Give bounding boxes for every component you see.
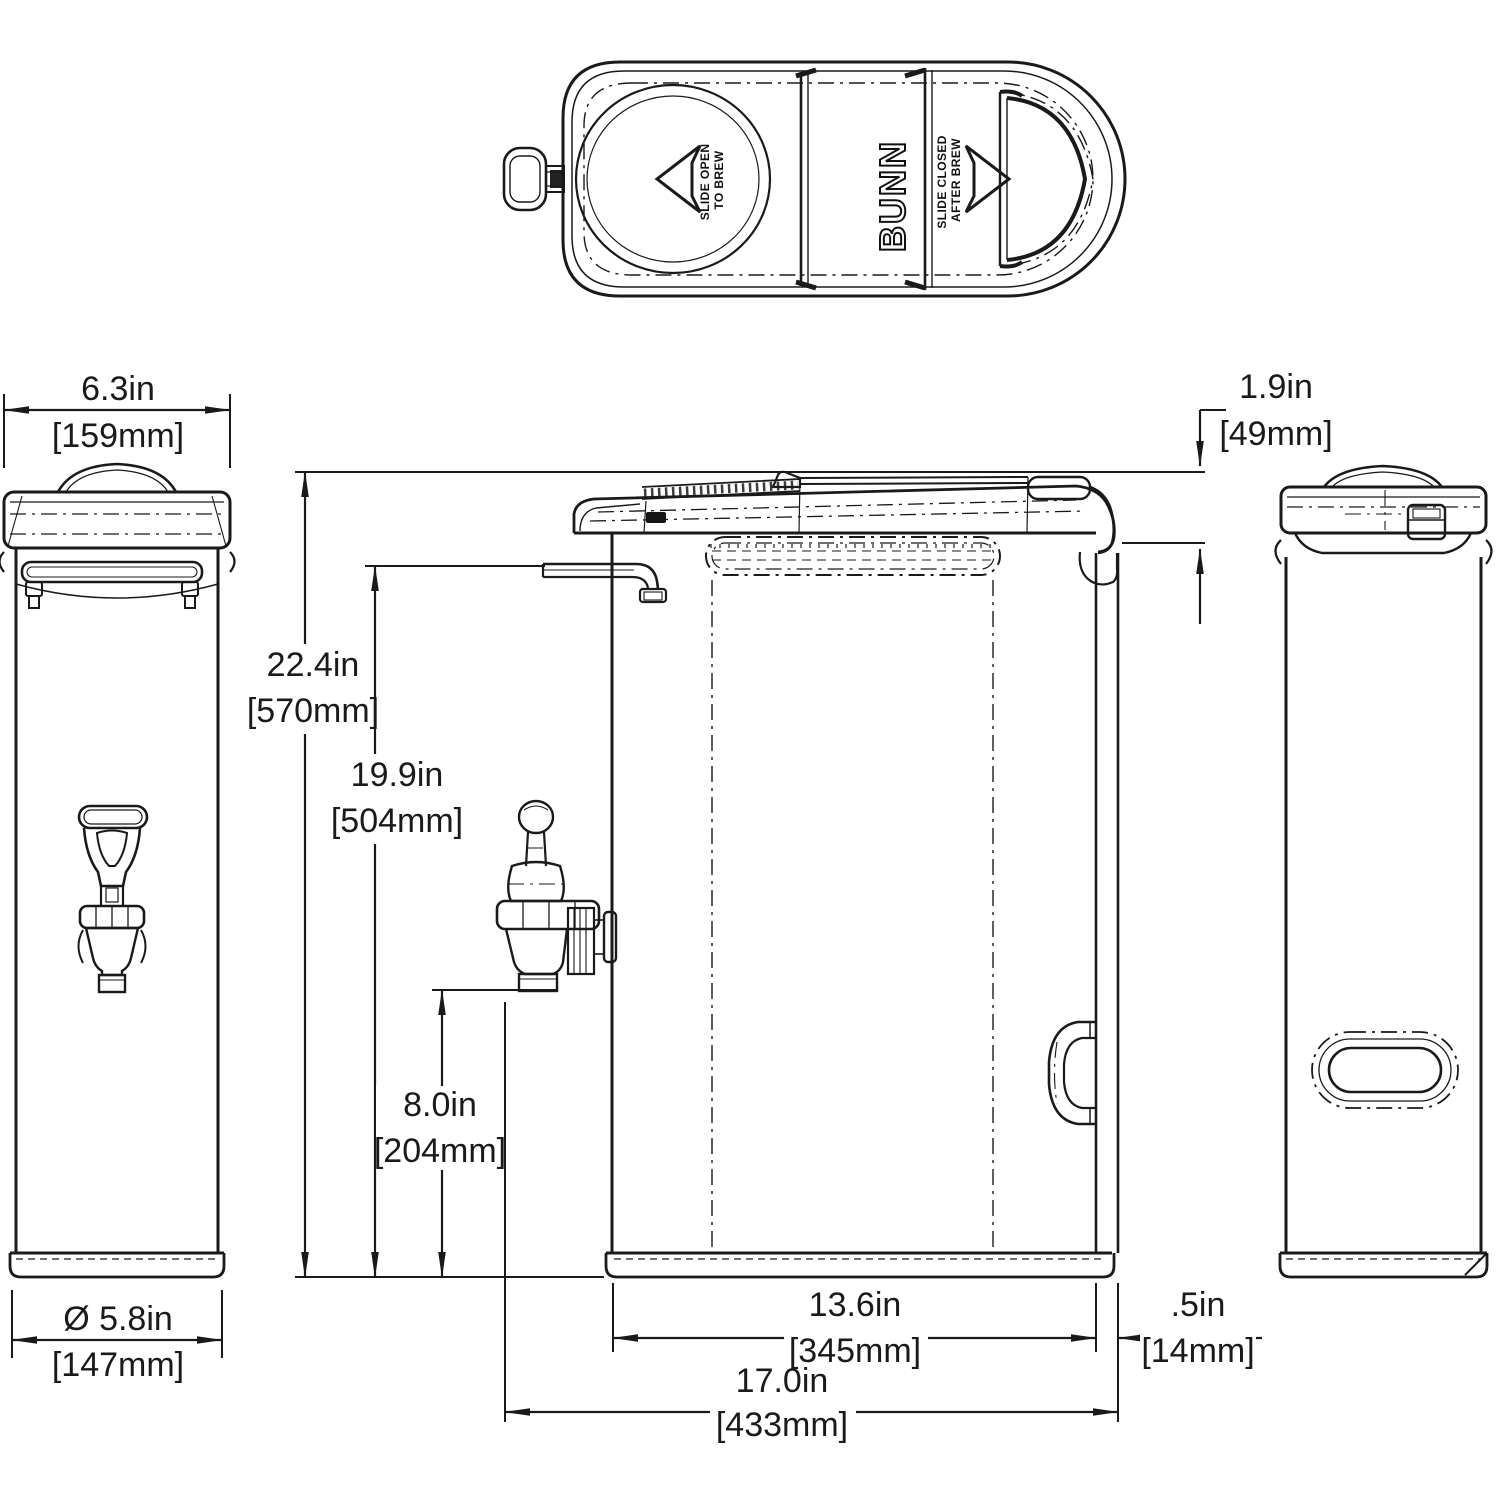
dim-lid-width: 6.3in [159mm] <box>4 370 230 468</box>
slide-open-arrow-icon <box>657 146 700 212</box>
dim-body-depth: 13.6in [345mm] <box>613 1283 1096 1370</box>
body-walls-back <box>1286 557 1481 1253</box>
lid-logo-mark <box>646 512 666 523</box>
dim-base-diameter-inches: Ø 5.8in <box>63 1300 173 1338</box>
dim-handle-clearance-metric: [14mm] <box>1141 1332 1254 1370</box>
lid-brim-back <box>1281 487 1486 533</box>
lid-clip-side <box>1080 552 1118 584</box>
slide-closed-label: SLIDE CLOSED AFTER BREW <box>935 131 963 228</box>
liner-hidden-lines <box>712 580 993 1248</box>
dim-base-diameter-metric: [147mm] <box>52 1346 184 1384</box>
base-side <box>606 1253 1114 1277</box>
dim-lid-height: 1.9in [49mm] <box>1122 368 1333 624</box>
c-handle-side <box>1049 1022 1096 1124</box>
technical-drawing-page: BUNN SLIDE OPEN TO BREW SLIDE CLOSED AFT… <box>0 0 1500 1500</box>
dim-overall-depth-inches: 17.0in <box>736 1362 829 1400</box>
faucet-shank-threads <box>568 908 594 974</box>
dim-handle-clearance: .5in [14mm] <box>1118 1286 1262 1370</box>
dimensions: 6.3in [159mm] 1.9in [49mm] 22.4in [570mm… <box>4 368 1333 1444</box>
oval-handle-recess <box>1312 1032 1458 1108</box>
faucet-flange <box>604 912 616 962</box>
dim-overall-depth-metric: [433mm] <box>716 1406 848 1444</box>
body-walls-front <box>16 548 218 1253</box>
faucet-side <box>497 801 616 991</box>
front-view <box>0 464 235 1277</box>
lid-dome-front <box>58 464 176 492</box>
dim-overall-height-inches: 22.4in <box>267 646 360 684</box>
dim-faucet-clearance: 8.0in [204mm] <box>374 990 558 1277</box>
brand-text: BUNN <box>872 140 913 252</box>
slide-open-label: SLIDE OPEN TO BREW <box>698 140 726 220</box>
dim-body-depth-inches: 13.6in <box>809 1286 902 1324</box>
dim-lid-height-metric: [49mm] <box>1219 415 1332 453</box>
base-back <box>1280 1253 1487 1277</box>
dim-lid-width-metric: [159mm] <box>52 417 184 455</box>
handle-elbow-side <box>543 564 666 602</box>
dim-overall-height-metric: [570mm] <box>247 692 379 730</box>
base-front <box>10 1253 224 1277</box>
dim-faucet-clearance-inches: 8.0in <box>403 1086 477 1124</box>
hidden-handle-tube <box>706 537 1000 575</box>
dim-faucet-clearance-metric: [204mm] <box>374 1132 506 1170</box>
faucet-knob-top-icon <box>504 148 564 210</box>
back-view <box>1276 466 1492 1277</box>
dim-overall-height: 22.4in [570mm] <box>242 472 388 1277</box>
lid-side <box>574 472 1117 585</box>
dim-tube-height-inches: 19.9in <box>351 756 444 794</box>
dim-tube-height-metric: [504mm] <box>331 802 463 840</box>
dispenser-dimension-drawing: BUNN SLIDE OPEN TO BREW SLIDE CLOSED AFT… <box>0 0 1500 1500</box>
slide-closed-arrow-icon <box>966 146 1009 212</box>
dim-overall-depth: 17.0in [433mm] <box>505 1002 1118 1444</box>
lid-dome-back <box>1324 466 1442 487</box>
lid-outline-top <box>563 62 1125 296</box>
dim-handle-clearance-inches: .5in <box>1171 1286 1226 1324</box>
lid-dome-top <box>576 85 770 273</box>
side-view <box>497 472 1118 1277</box>
brew-opening-top <box>1000 92 1093 267</box>
faucet-front <box>79 806 148 992</box>
top-view: BUNN SLIDE OPEN TO BREW SLIDE CLOSED AFT… <box>504 62 1125 296</box>
handle-bar-front <box>22 562 202 608</box>
dim-base-diameter: Ø 5.8in [147mm] <box>12 1290 222 1384</box>
lid-brim-front <box>4 492 230 548</box>
dim-lid-width-inches: 6.3in <box>81 370 155 408</box>
dim-lid-height-inches: 1.9in <box>1239 368 1313 406</box>
